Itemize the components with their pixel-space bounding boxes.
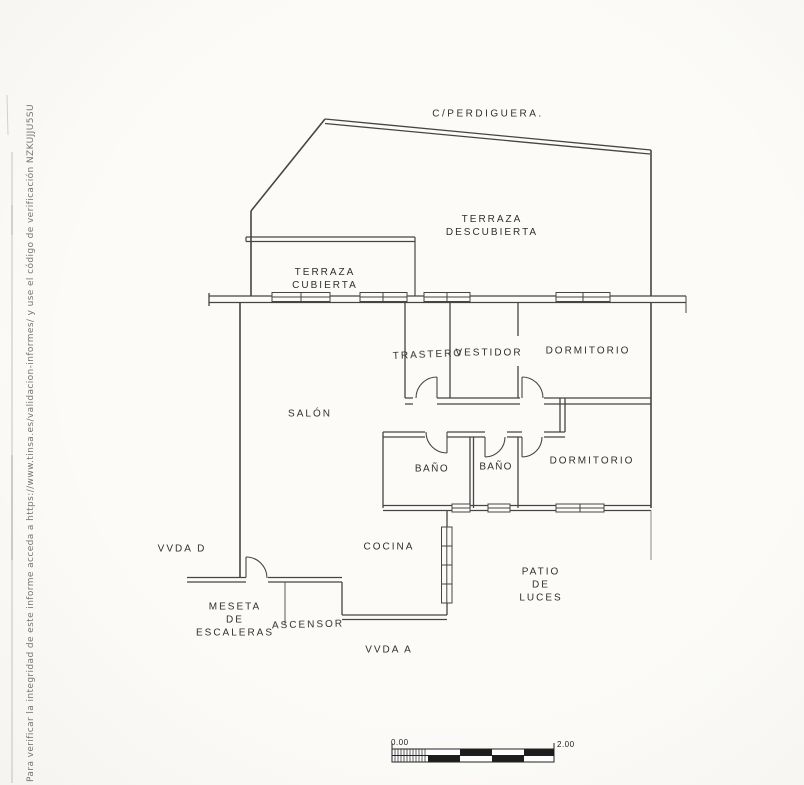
room-label-salon: SALÓN xyxy=(288,408,332,421)
annotation-ascensor: ASCENSOR xyxy=(272,618,344,633)
scale-bar xyxy=(392,743,554,762)
room-label-bano-2: BAÑO xyxy=(479,461,512,474)
room-label-patio-de-luces: PATIO DE LUCES xyxy=(519,566,562,605)
street-label: C/PERDIGUERA. xyxy=(432,108,543,121)
room-label-bano-1: BAÑO xyxy=(415,463,449,476)
floor-plan-drawing xyxy=(0,0,804,785)
scan-artifact-lines xyxy=(7,95,12,783)
scale-bar-left-value: 0.00 xyxy=(391,738,409,747)
room-label-vestidor: VESTIDOR xyxy=(455,347,522,360)
room-label-terraza-descubierta: TERRAZA DESCUBIERTA xyxy=(446,213,538,239)
scanned-floor-plan-page: C/PERDIGUERA. TERRAZA DESCUBIERTA TERRAZ… xyxy=(0,0,804,785)
scale-bar-right-value: 2.00 xyxy=(557,740,575,749)
verification-watermark: Para verificar la integridad de este inf… xyxy=(26,104,36,782)
annotation-vvda-a: VVDA A xyxy=(365,644,413,657)
room-label-terraza-cubierta: TERRAZA CUBIERTA xyxy=(292,266,358,292)
room-label-dormitorio-1: DORMITORIO xyxy=(546,345,631,358)
room-label-dormitorio-2: DORMITORIO xyxy=(550,455,635,468)
kitchen-window-symbol xyxy=(442,527,453,603)
facade-window-symbols xyxy=(272,293,610,302)
annotation-vvda-d: VVDA D xyxy=(158,543,207,556)
annotation-meseta-escaleras: MESETA DE ESCALERAS xyxy=(196,601,274,640)
room-label-cocina: COCINA xyxy=(364,541,415,554)
